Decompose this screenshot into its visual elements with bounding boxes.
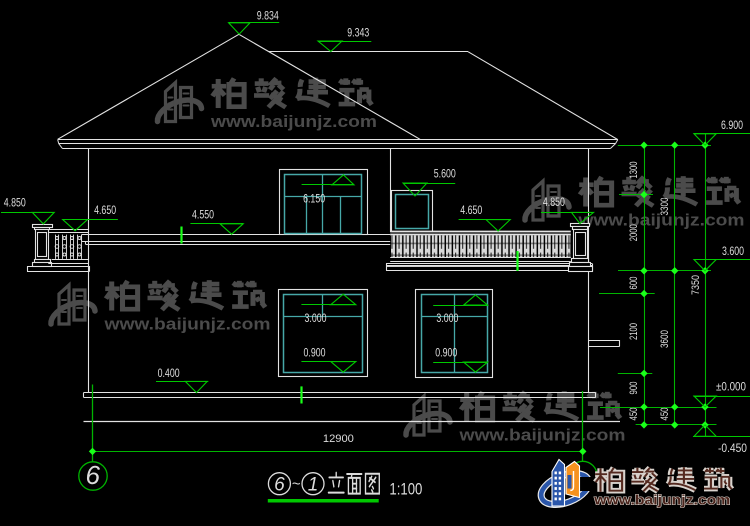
svg-text:0.900: 0.900 xyxy=(435,346,457,359)
svg-text:4.850: 4.850 xyxy=(4,196,26,209)
svg-text:3300: 3300 xyxy=(659,197,671,215)
svg-text:6: 6 xyxy=(274,474,285,495)
svg-text:2000: 2000 xyxy=(628,224,640,241)
svg-text:1:100: 1:100 xyxy=(389,481,422,499)
svg-text:6: 6 xyxy=(85,460,100,490)
svg-text:9.834: 9.834 xyxy=(257,9,279,22)
svg-text:-0.450: -0.450 xyxy=(718,442,747,455)
svg-text:1300: 1300 xyxy=(628,161,640,178)
svg-text:www.baijunjz.com: www.baijunjz.com xyxy=(210,113,377,131)
svg-text:600: 600 xyxy=(628,276,640,289)
svg-text:7350: 7350 xyxy=(690,275,702,295)
svg-text:www.baijunjz.com: www.baijunjz.com xyxy=(593,493,730,508)
svg-text:3.000: 3.000 xyxy=(436,312,458,325)
svg-text:4.850: 4.850 xyxy=(543,196,565,209)
svg-text:4.550: 4.550 xyxy=(192,208,214,221)
svg-text:4.650: 4.650 xyxy=(460,204,482,217)
svg-text:9.343: 9.343 xyxy=(347,26,369,39)
svg-text:www.baijunjz.com: www.baijunjz.com xyxy=(458,427,625,445)
svg-text:2100: 2100 xyxy=(628,323,640,340)
svg-text:1: 1 xyxy=(308,474,319,495)
svg-text:4.650: 4.650 xyxy=(94,204,116,217)
svg-text:450: 450 xyxy=(659,407,671,420)
svg-text:3600: 3600 xyxy=(659,330,671,348)
svg-text:0.400: 0.400 xyxy=(158,367,180,380)
svg-text:5.600: 5.600 xyxy=(434,168,456,181)
svg-text:3.600: 3.600 xyxy=(722,245,744,258)
svg-text:±0.000: ±0.000 xyxy=(716,381,746,394)
svg-text:450: 450 xyxy=(628,407,640,420)
svg-text:www.baijunjz.com: www.baijunjz.com xyxy=(103,316,270,334)
svg-text:6.150: 6.150 xyxy=(303,192,325,205)
svg-text:6.900: 6.900 xyxy=(721,119,743,132)
svg-text:3.000: 3.000 xyxy=(305,312,327,325)
svg-text:~: ~ xyxy=(292,476,301,493)
svg-text:12900: 12900 xyxy=(323,433,354,445)
svg-text:900: 900 xyxy=(628,381,640,394)
svg-text:0.900: 0.900 xyxy=(304,346,326,359)
